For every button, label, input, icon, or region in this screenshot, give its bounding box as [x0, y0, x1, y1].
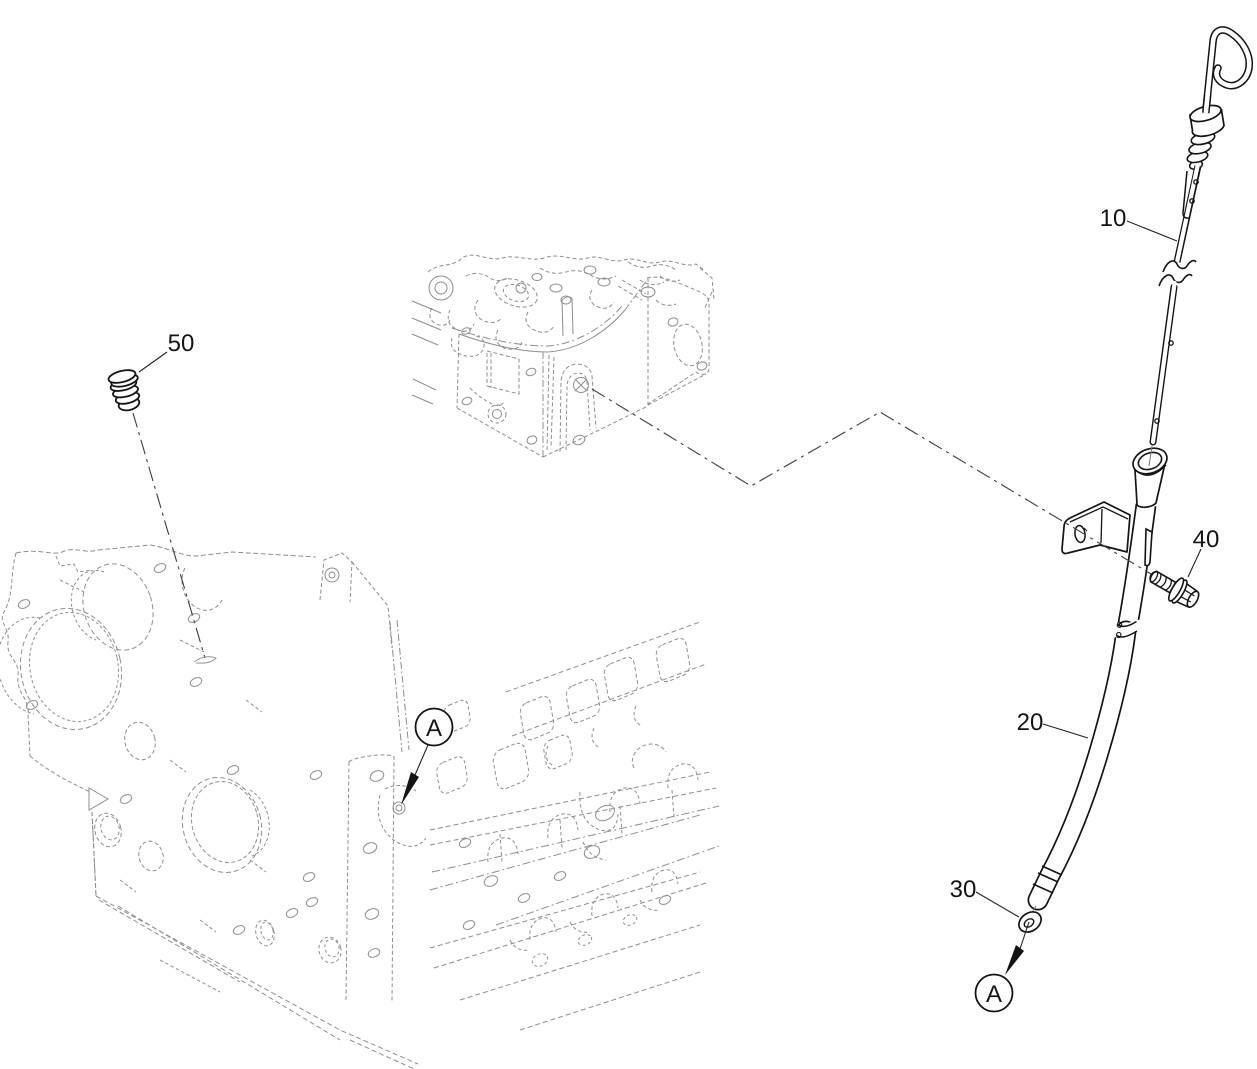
svg-text:40: 40 [1193, 526, 1220, 553]
svg-text:30: 30 [950, 876, 977, 903]
svg-text:A: A [986, 981, 1002, 1008]
svg-text:A: A [426, 715, 442, 742]
svg-text:50: 50 [168, 330, 195, 357]
svg-text:10: 10 [1100, 205, 1127, 232]
svg-text:20: 20 [1017, 709, 1044, 736]
